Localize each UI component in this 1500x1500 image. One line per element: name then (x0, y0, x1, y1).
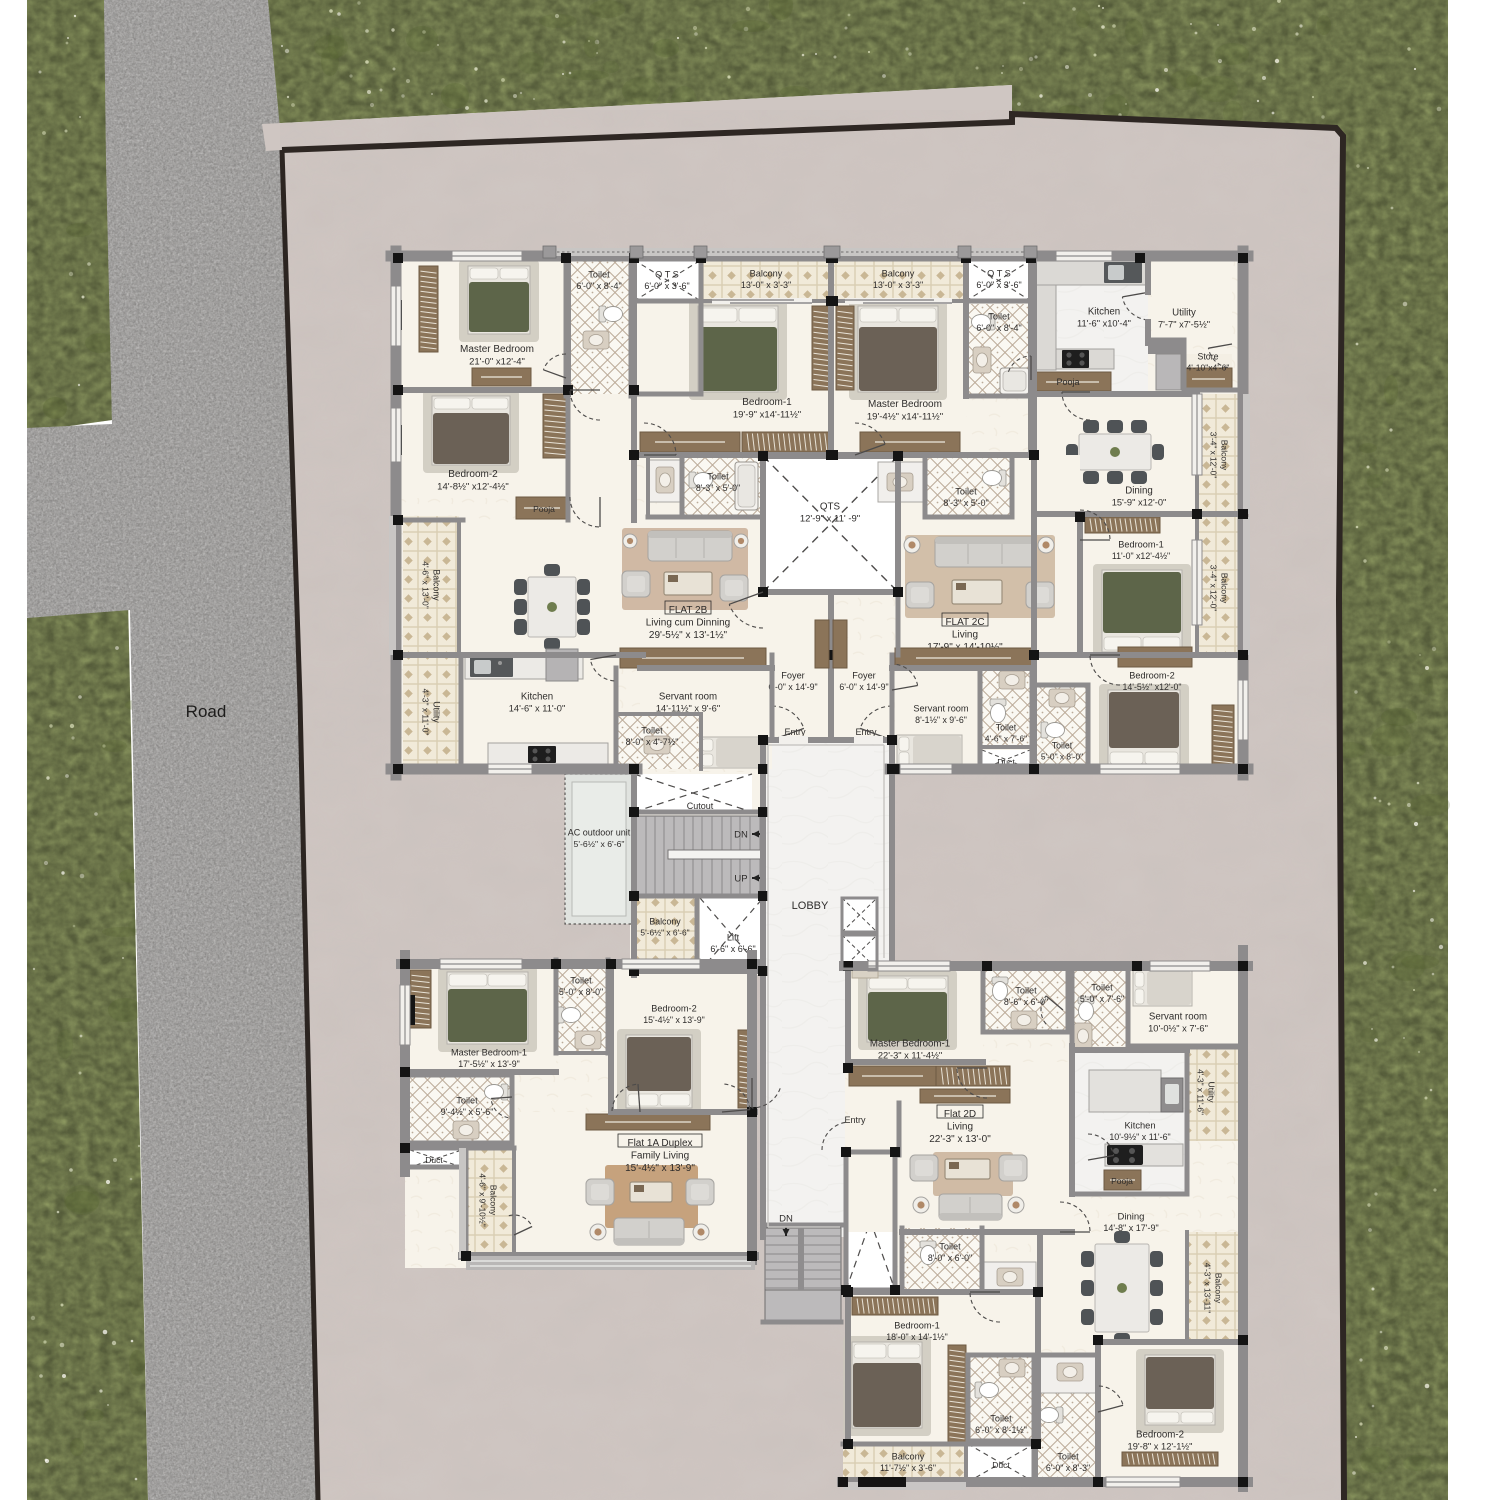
svg-text:Servant room: Servant room (1149, 1011, 1207, 1022)
svg-text:Toilet: Toilet (1015, 985, 1037, 995)
svg-text:Kitchen: Kitchen (1088, 306, 1120, 317)
svg-text:Balcony: Balcony (489, 1185, 499, 1216)
svg-text:3'-4" x 12'-0": 3'-4" x 12'-0" (1209, 432, 1219, 478)
svg-text:21'-0" x12'-4": 21'-0" x12'-4" (469, 357, 525, 368)
svg-text:Balcony: Balcony (892, 1451, 925, 1461)
svg-text:Utility: Utility (432, 701, 442, 723)
svg-text:Family Living: Family Living (631, 1151, 689, 1162)
svg-text:AC outdoor unit: AC outdoor unit (568, 827, 631, 837)
svg-text:Balcony: Balcony (1220, 573, 1230, 604)
svg-text:Servant room: Servant room (913, 703, 968, 713)
svg-text:11'-0" x12'-4½": 11'-0" x12'-4½" (1112, 551, 1170, 561)
svg-text:8'-1½" x 9'-6": 8'-1½" x 9'-6" (915, 715, 967, 725)
svg-text:Toilet: Toilet (456, 1095, 478, 1105)
svg-text:19'-8" x 12'-1½": 19'-8" x 12'-1½" (1128, 1441, 1193, 1451)
svg-text:10'-0½" x 7'-6": 10'-0½" x 7'-6" (1148, 1023, 1208, 1033)
svg-text:15'-9" x12'-0": 15'-9" x12'-0" (1112, 497, 1167, 507)
svg-text:Toilet: Toilet (939, 1241, 961, 1251)
svg-text:14'-8" x 17'-9": 14'-8" x 17'-9" (1103, 1223, 1158, 1233)
svg-text:4'-10"x4'-6": 4'-10"x4'-6" (1187, 363, 1230, 373)
svg-text:6'-0" x 14'-9": 6'-0" x 14'-9" (839, 682, 888, 692)
svg-text:4'-6" x 9'-10½": 4'-6" x 9'-10½" (478, 1173, 488, 1226)
svg-text:Balcony: Balcony (1214, 1273, 1224, 1304)
svg-text:13'-0" x 3'-3": 13'-0" x 3'-3" (873, 280, 923, 290)
svg-text:DN: DN (734, 829, 748, 840)
svg-text:5'-6½" x 6'-6": 5'-6½" x 6'-6" (573, 839, 624, 849)
svg-text:17'-5½" x 13'-9": 17'-5½" x 13'-9" (458, 1059, 519, 1069)
svg-text:14'-11½" x 9'-6": 14'-11½" x 9'-6" (656, 703, 720, 713)
svg-text:14'-6" x 11'-0": 14'-6" x 11'-0" (509, 703, 566, 713)
svg-text:8'-3" x 5'-0": 8'-3" x 5'-0" (696, 483, 740, 493)
svg-text:Bedroom-1: Bedroom-1 (894, 1320, 939, 1330)
svg-text:QTS: QTS (820, 501, 841, 512)
svg-text:4'-3" x 11'-6": 4'-3" x 11'-6" (1196, 1069, 1206, 1115)
svg-text:LOBBY: LOBBY (792, 900, 829, 912)
svg-text:Bedroom-2: Bedroom-2 (1129, 670, 1174, 680)
svg-text:Toilet: Toilet (707, 471, 729, 481)
svg-text:Balcony: Balcony (432, 569, 442, 601)
svg-text:Bedroom-1: Bedroom-1 (742, 397, 792, 408)
svg-text:11'-6" x10'-4": 11'-6" x10'-4" (1077, 318, 1131, 328)
svg-text:12'-9" x 11' -9": 12'-9" x 11' -9" (800, 514, 860, 525)
svg-text:Entry: Entry (855, 727, 877, 737)
svg-text:Toilet: Toilet (988, 311, 1010, 321)
svg-text:Foyer: Foyer (781, 670, 805, 680)
svg-text:6'-0" x 3'-6": 6'-0" x 3'-6" (644, 281, 689, 291)
svg-text:4'-6" x 13'-0": 4'-6" x 13'-0" (420, 561, 430, 609)
svg-text:5'-0" x 8'-0": 5'-0" x 8'-0" (1041, 752, 1083, 762)
svg-text:Utility: Utility (1172, 307, 1196, 318)
svg-text:Living: Living (952, 630, 978, 641)
svg-text:Lift: Lift (727, 932, 740, 942)
svg-text:Q T S: Q T S (655, 269, 679, 279)
svg-text:UP: UP (734, 873, 747, 884)
svg-text:14'-5½" x12'-0": 14'-5½" x12'-0" (1123, 682, 1182, 692)
svg-text:6'-0" x 14'-9": 6'-0" x 14'-9" (768, 682, 817, 692)
svg-text:Balcony: Balcony (1220, 440, 1230, 471)
svg-text:Kitchen: Kitchen (1124, 1120, 1155, 1130)
svg-text:Toilet: Toilet (1091, 982, 1113, 992)
svg-text:Living cum Dinning: Living cum Dinning (646, 618, 731, 629)
svg-text:Toilet: Toilet (1057, 1451, 1079, 1461)
svg-text:Toilet: Toilet (570, 975, 592, 985)
svg-text:Dining: Dining (1125, 485, 1152, 496)
svg-text:18'-0" x 14'-1½": 18'-0" x 14'-1½" (886, 1332, 947, 1342)
svg-text:4'-3" x 13'-11": 4'-3" x 13'-11" (1203, 1263, 1213, 1313)
svg-text:4'-3" x 11'-0": 4'-3" x 11'-0" (420, 689, 430, 736)
svg-text:7'-7" x7'-5½": 7'-7" x7'-5½" (1158, 319, 1210, 329)
svg-text:5'-6½" x 6'-6": 5'-6½" x 6'-6" (640, 928, 689, 938)
svg-text:Kitchen: Kitchen (521, 691, 553, 702)
svg-text:13'-0" x 3'-3": 13'-0" x 3'-3" (741, 280, 791, 290)
svg-text:22'-3" x 13'-0": 22'-3" x 13'-0" (929, 1134, 991, 1145)
svg-text:Master Bedroom: Master Bedroom (868, 399, 942, 410)
svg-text:Bedroom-2: Bedroom-2 (1136, 1429, 1184, 1440)
svg-text:4'-6" x 7'-6": 4'-6" x 7'-6" (985, 734, 1027, 744)
svg-text:6'-0" x 8'-3": 6'-0" x 8'-3" (1046, 1463, 1090, 1473)
svg-text:Toilet: Toilet (996, 722, 1017, 732)
svg-text:19'-4½" x14'-11½": 19'-4½" x14'-11½" (867, 412, 943, 423)
svg-text:Balcony: Balcony (750, 268, 783, 278)
svg-text:Road: Road (186, 702, 227, 721)
svg-text:Toilet: Toilet (1052, 740, 1073, 750)
svg-text:Living: Living (947, 1122, 973, 1133)
svg-text:6'-0" x 8'-4": 6'-0" x 8'-4" (976, 323, 1021, 333)
svg-text:11'-7½" x 3'-6": 11'-7½" x 3'-6" (880, 1463, 936, 1473)
svg-text:3'-4" x 12'-0": 3'-4" x 12'-0" (1209, 565, 1219, 611)
svg-text:Toilet: Toilet (990, 1413, 1012, 1423)
svg-text:19'-9" x14'-11½": 19'-9" x14'-11½" (733, 410, 801, 421)
svg-text:Pooja: Pooja (1056, 377, 1079, 387)
svg-text:9'-4½" x 5'-6": 9'-4½" x 5'-6" (441, 1107, 494, 1117)
svg-text:Dining: Dining (1118, 1211, 1145, 1222)
svg-text:Balcony: Balcony (649, 916, 681, 926)
svg-text:Pooja: Pooja (1111, 1176, 1133, 1186)
svg-text:FLAT 2C: FLAT 2C (945, 617, 984, 628)
svg-text:8'-3" x 5'-0": 8'-3" x 5'-0" (943, 498, 988, 508)
svg-text:8'-0" x 4'-7½": 8'-0" x 4'-7½" (626, 737, 679, 747)
svg-text:Balcony: Balcony (882, 268, 915, 278)
svg-text:6'-0" x 3'-6": 6'-0" x 3'-6" (976, 280, 1021, 290)
svg-text:6'-0" x 8'-4": 6'-0" x 8'-4" (576, 281, 621, 291)
svg-text:29'-5½" x 13'-1½": 29'-5½" x 13'-1½" (649, 630, 728, 641)
svg-text:Duct: Duct (992, 1460, 1010, 1470)
svg-text:22'-3" x 11'-4½": 22'-3" x 11'-4½" (878, 1050, 942, 1060)
svg-text:Utility: Utility (1207, 1081, 1217, 1103)
svg-text:14'-8½" x12'-4½": 14'-8½" x12'-4½" (437, 482, 509, 493)
svg-text:Flat 1A Duplex: Flat 1A Duplex (627, 1138, 692, 1149)
svg-text:Pooja: Pooja (533, 504, 555, 514)
svg-text:5'-0" x 7'-6": 5'-0" x 7'-6" (1080, 994, 1124, 1004)
svg-text:8'-6" x 6'-0": 8'-6" x 6'-0" (1004, 997, 1048, 1007)
svg-text:6'-0" x 8'-1½": 6'-0" x 8'-1½" (975, 1425, 1027, 1435)
svg-text:Flat 2D: Flat 2D (944, 1109, 976, 1120)
svg-text:Bedroom-1: Bedroom-1 (1118, 539, 1163, 549)
svg-text:Toilet: Toilet (641, 725, 663, 735)
svg-text:Servant room: Servant room (659, 691, 717, 702)
svg-text:5'-0" x 8'-0": 5'-0" x 8'-0" (559, 987, 603, 997)
svg-text:15'-4½" x 13'-9": 15'-4½" x 13'-9" (643, 1015, 704, 1025)
svg-text:Toilet: Toilet (955, 486, 977, 496)
svg-text:Master Bedroom: Master Bedroom (460, 344, 534, 355)
svg-text:Master Bedroom-1: Master Bedroom-1 (870, 1038, 950, 1049)
svg-text:Store: Store (1197, 351, 1218, 361)
svg-text:Foyer: Foyer (852, 670, 876, 680)
svg-text:Duct: Duct (425, 1155, 443, 1165)
svg-text:Bedroom-2: Bedroom-2 (448, 469, 498, 480)
svg-text:Toilet: Toilet (588, 269, 610, 279)
svg-text:Entry: Entry (844, 1115, 866, 1125)
svg-text:8'-0" x 6'-0": 8'-0" x 6'-0" (928, 1253, 972, 1263)
svg-text:15'-4½" x 13'-9": 15'-4½" x 13'-9" (625, 1163, 695, 1174)
svg-text:FLAT 2B: FLAT 2B (669, 605, 708, 616)
svg-text:Master Bedroom-1: Master Bedroom-1 (451, 1047, 527, 1057)
svg-text:10'-9½" x 11'-6": 10'-9½" x 11'-6" (1109, 1132, 1170, 1142)
svg-text:Bedroom-2: Bedroom-2 (651, 1003, 696, 1013)
svg-text:Q T S: Q T S (987, 268, 1011, 278)
